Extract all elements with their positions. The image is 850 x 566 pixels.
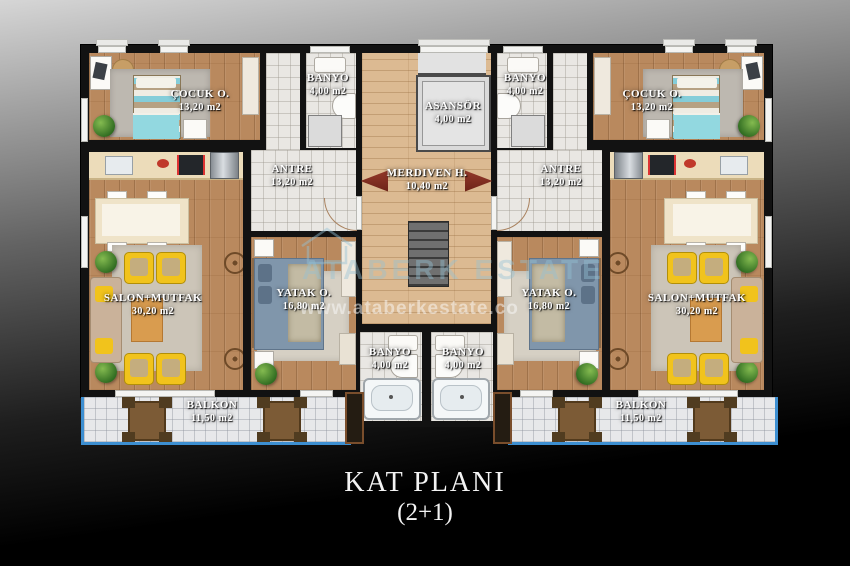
kitchen-sink xyxy=(720,156,748,175)
bed-pillow xyxy=(258,264,272,282)
window xyxy=(98,46,126,53)
room-name: BALKON xyxy=(152,399,272,413)
wall-wheel-decor xyxy=(610,252,629,274)
wall-wheel-decor xyxy=(224,252,243,274)
plant xyxy=(93,115,115,137)
window xyxy=(765,98,772,142)
plant xyxy=(576,363,598,385)
service-shaft xyxy=(345,392,364,444)
room-name: SALON+MUTFAK xyxy=(93,292,213,306)
floor-plan-image: ÇOCUK O. 13,20 m2 BANYO 4,00 m2 ANTRE 13… xyxy=(0,0,850,566)
armchair xyxy=(156,353,186,385)
label-banyo-top-right: BANYO 4,00 m2 xyxy=(465,72,585,98)
label-antre-right: ANTRE 13,20 m2 xyxy=(501,163,621,189)
house-logo-icon xyxy=(296,224,358,268)
room-name: ÇOCUK O. xyxy=(592,88,712,102)
kitchen-sink xyxy=(105,156,133,175)
room-area: 11,50 m2 xyxy=(581,413,701,426)
bed-blanket xyxy=(133,113,179,139)
fruit-bowl xyxy=(157,159,169,168)
plant xyxy=(736,251,758,273)
room-salon-right xyxy=(610,152,764,390)
armchair xyxy=(156,252,186,284)
window xyxy=(81,98,88,142)
balcony-chairs xyxy=(724,397,737,408)
window xyxy=(727,46,755,53)
window xyxy=(81,216,88,268)
hall-antre-right-upper xyxy=(553,53,587,150)
room-name: YATAK O. xyxy=(244,287,364,301)
bed-blanket xyxy=(674,113,720,139)
label-salon-right: SALON+MUTFAK 30,20 m2 xyxy=(637,292,757,318)
room-area: 10,40 m2 xyxy=(367,181,487,194)
room-area: 16,80 m2 xyxy=(489,301,609,314)
bed-pillow xyxy=(581,264,595,282)
plant xyxy=(95,251,117,273)
room-name: ÇOCUK O. xyxy=(140,88,260,102)
window xyxy=(160,46,188,53)
dining-table-top xyxy=(102,204,180,236)
room-area: 13,20 m2 xyxy=(501,177,621,190)
label-asansor: ASANSÖR 4,00 m2 xyxy=(393,100,513,126)
room-area: 30,20 m2 xyxy=(637,306,757,319)
label-antre-left: ANTRE 13,20 m2 xyxy=(232,163,352,189)
room-area: 11,50 m2 xyxy=(152,413,272,426)
room-name: BALKON xyxy=(581,399,701,413)
room-name: YATAK O. xyxy=(489,287,609,301)
armchair xyxy=(699,252,729,284)
room-salon-left xyxy=(89,152,243,390)
hall-antre-left-upper xyxy=(266,53,300,150)
room-area: 4,00 m2 xyxy=(403,360,523,373)
label-balkon-left: BALKON 11,50 m2 xyxy=(152,399,272,425)
room-name: MERDIVEN H. xyxy=(367,167,487,181)
plan-subtitle: (2+1) xyxy=(0,499,850,527)
label-yatak-left: YATAK O. 16,80 m2 xyxy=(244,287,364,313)
balcony-door xyxy=(638,390,738,397)
room-area: 30,20 m2 xyxy=(93,306,213,319)
nightstand xyxy=(579,239,599,257)
plant xyxy=(95,361,117,383)
wall-wheel-decor xyxy=(224,348,243,370)
label-balkon-right: BALKON 11,50 m2 xyxy=(581,399,701,425)
plan-title: KAT PLANI xyxy=(0,467,850,499)
plant xyxy=(736,361,758,383)
room-name: BANYO xyxy=(268,72,388,86)
label-cocuk-left: ÇOCUK O. 13,20 m2 xyxy=(140,88,260,114)
label-yatak-right: YATAK O. 16,80 m2 xyxy=(489,287,609,313)
stove xyxy=(648,155,676,175)
nightstand xyxy=(646,119,670,139)
plant xyxy=(738,115,760,137)
nightstand xyxy=(254,239,274,257)
room-name: ANTRE xyxy=(501,163,621,177)
room-area: 13,20 m2 xyxy=(140,102,260,115)
window xyxy=(420,46,488,53)
window-sill xyxy=(663,39,695,46)
window-sill xyxy=(418,39,490,46)
room-area: 4,00 m2 xyxy=(465,86,585,99)
armchair xyxy=(667,252,697,284)
room-area: 16,80 m2 xyxy=(244,301,364,314)
dining-table-top xyxy=(673,204,751,236)
bathtub-drain xyxy=(389,395,393,399)
label-merdiven: MERDIVEN H. 10,40 m2 xyxy=(367,167,487,193)
bathtub-drain xyxy=(460,395,464,399)
bed-pillow xyxy=(677,78,717,88)
balcony-door xyxy=(520,390,553,397)
balcony-chairs xyxy=(122,397,135,408)
nightstand xyxy=(183,119,207,139)
window-sill xyxy=(158,39,190,46)
label-salon-left: SALON+MUTFAK 30,20 m2 xyxy=(93,292,213,318)
room-name: SALON+MUTFAK xyxy=(637,292,757,306)
sofa-pillow xyxy=(740,338,758,354)
room-area: 13,20 m2 xyxy=(232,177,352,190)
room-name: BANYO xyxy=(465,72,585,86)
bed-pillow xyxy=(136,78,176,88)
room-name: ASANSÖR xyxy=(393,100,513,114)
room-area: 4,00 m2 xyxy=(393,114,513,127)
armchair xyxy=(124,353,154,385)
service-shaft xyxy=(493,392,512,444)
room-area: 13,20 m2 xyxy=(592,102,712,115)
bathroom-sink xyxy=(507,57,539,73)
armchair xyxy=(124,252,154,284)
shower xyxy=(511,115,545,147)
bathroom-sink xyxy=(314,57,346,73)
window xyxy=(310,46,350,53)
window xyxy=(665,46,693,53)
stove xyxy=(177,155,205,175)
staircase xyxy=(408,221,449,287)
room-name: ANTRE xyxy=(232,163,352,177)
balcony-door xyxy=(115,390,215,397)
window-sill xyxy=(725,39,757,46)
label-cocuk-right: ÇOCUK O. 13,20 m2 xyxy=(592,88,712,114)
label-banyo-bottom-right: BANYO 4,00 m2 xyxy=(403,346,523,372)
room-name: BANYO xyxy=(403,346,523,360)
label-banyo-top-left: BANYO 4,00 m2 xyxy=(268,72,388,98)
armchair xyxy=(667,353,697,385)
fruit-bowl xyxy=(684,159,696,168)
room-banyo-top-left xyxy=(306,53,356,148)
plant xyxy=(255,363,277,385)
window xyxy=(503,46,543,53)
window xyxy=(765,216,772,268)
window-sill xyxy=(96,39,128,46)
wall-wheel-decor xyxy=(610,348,629,370)
armchair xyxy=(699,353,729,385)
balcony-door xyxy=(300,390,333,397)
sofa-pillow xyxy=(95,338,113,354)
room-area: 4,00 m2 xyxy=(268,86,388,99)
shower xyxy=(308,115,342,147)
